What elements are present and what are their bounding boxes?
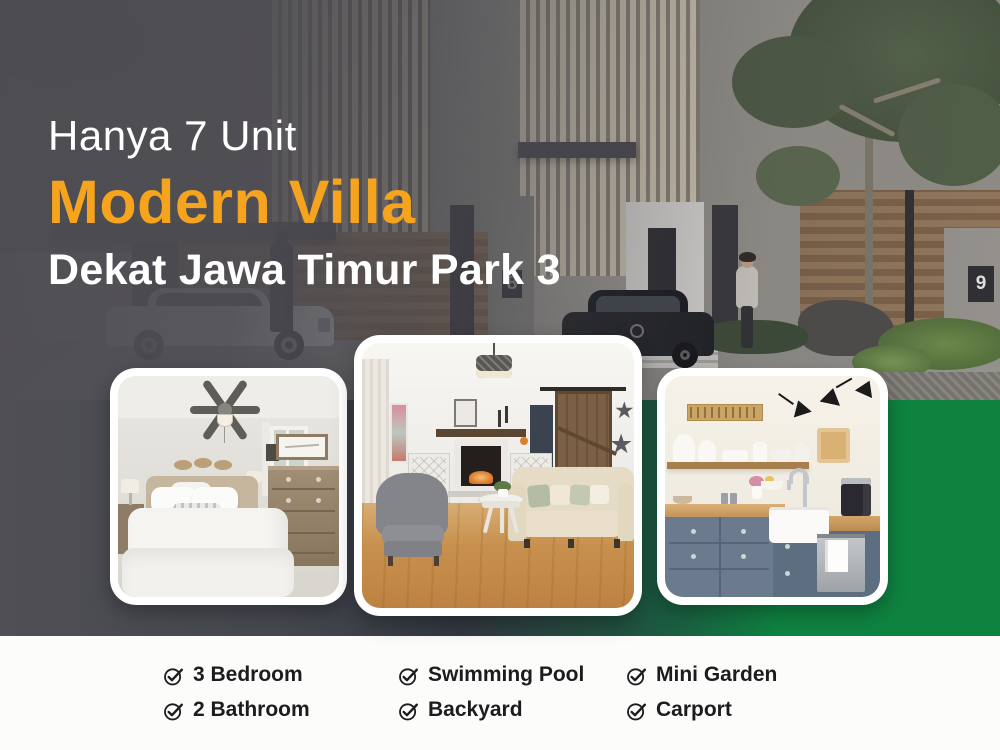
kitchen-photo (665, 376, 880, 597)
headline-subtitle: Dekat Jawa Timur Park 3 (48, 246, 561, 295)
wall-art (817, 428, 850, 463)
living-room-photo: ★ ★ (362, 343, 634, 608)
kitchen-photo-card (657, 368, 888, 605)
feature-item: 3 Bedroom (163, 663, 398, 687)
check-circle-icon (163, 665, 184, 686)
feature-label: 3 Bedroom (193, 663, 303, 687)
open-shelf (667, 462, 809, 469)
bedroom-photo (118, 376, 339, 597)
cake-dome (673, 434, 695, 462)
wall-art (390, 403, 408, 463)
feature-list: 3 Bedroom Swimming Pool Mini Garden 2 Ba… (163, 663, 846, 722)
feature-label: Carport (656, 698, 732, 722)
throw-pillow (527, 484, 551, 508)
mantel-frame (454, 399, 477, 427)
feature-label: Mini Garden (656, 663, 777, 687)
check-circle-icon (398, 665, 419, 686)
feature-item: Backyard (398, 698, 626, 722)
star-decor: ★ (614, 399, 634, 422)
feature-label: Swimming Pool (428, 663, 584, 687)
headline-kicker: Hanya 7 Unit (48, 112, 561, 160)
check-circle-icon (163, 700, 184, 721)
pendant-light (476, 355, 512, 378)
check-circle-icon (626, 665, 647, 686)
sconce-light (789, 397, 812, 417)
living-room-photo-card: ★ ★ (354, 335, 642, 616)
headline-block: Hanya 7 Unit Modern Villa Dekat Jawa Tim… (48, 112, 561, 295)
wall-decor (174, 460, 192, 470)
villa-promo-poster: 8 9 3 Bedroom Swimming Pool Mini Garden … (0, 0, 1000, 750)
coffee-maker (841, 478, 871, 516)
feature-label: Backyard (428, 698, 523, 722)
feature-label: 2 Bathroom (193, 698, 310, 722)
bedroom-photo-card (110, 368, 347, 605)
check-circle-icon (398, 700, 419, 721)
fireplace-mantel (436, 429, 526, 437)
towel (825, 540, 848, 572)
lamp (121, 479, 139, 493)
feature-item: Mini Garden (626, 663, 846, 687)
wood-countertop (665, 504, 785, 517)
headline-title: Modern Villa (48, 167, 561, 237)
check-circle-icon (626, 700, 647, 721)
feature-item: Carport (626, 698, 846, 722)
wall-art (687, 404, 763, 421)
wall-art (276, 434, 328, 460)
feature-item: 2 Bathroom (163, 698, 398, 722)
footer: 3 Bedroom Swimming Pool Mini Garden 2 Ba… (0, 636, 1000, 750)
feature-item: Swimming Pool (398, 663, 626, 687)
